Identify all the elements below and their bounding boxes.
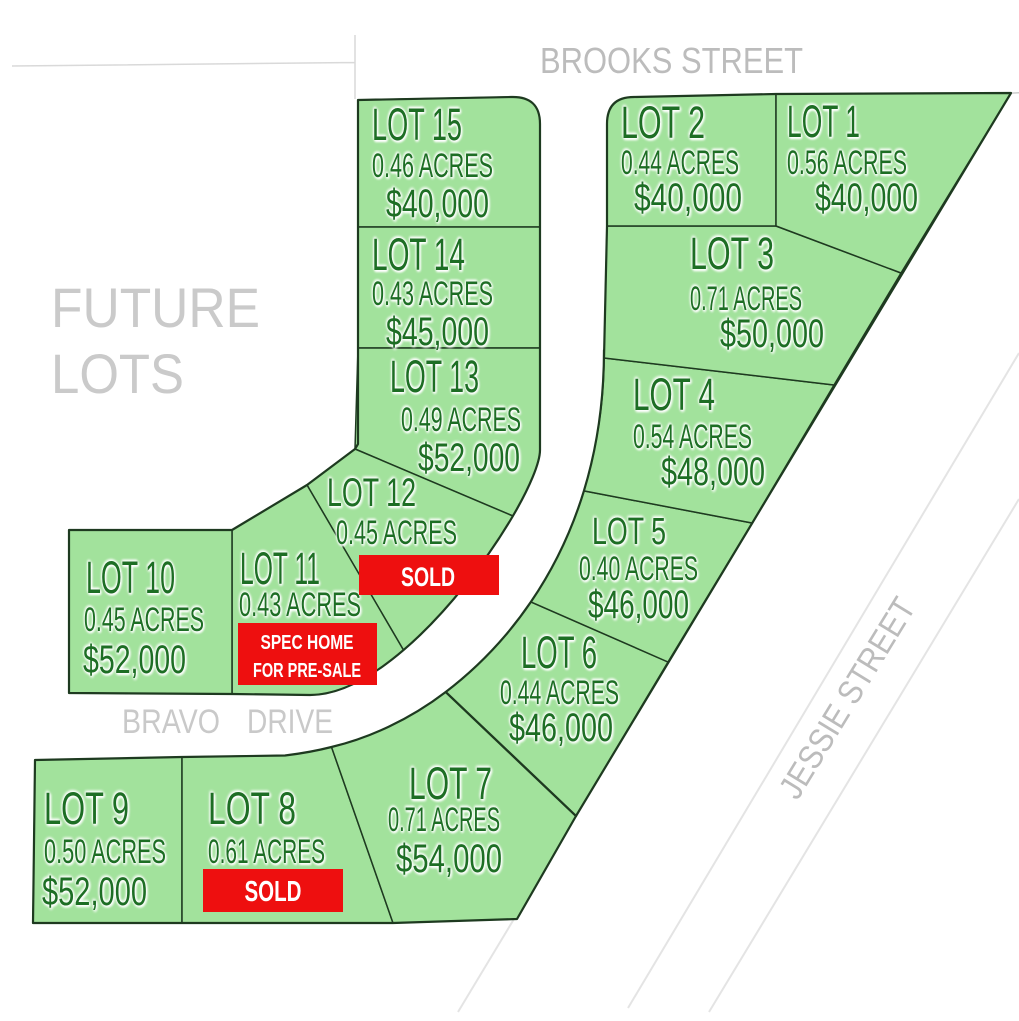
- svg-text:$50,000: $50,000: [720, 312, 824, 356]
- svg-text:BRAVO: BRAVO: [122, 703, 220, 741]
- svg-text:LOT 12: LOT 12: [327, 471, 416, 515]
- svg-text:FUTURE: FUTURE: [51, 276, 260, 339]
- svg-text:$48,000: $48,000: [661, 450, 765, 494]
- svg-text:LOT 9: LOT 9: [44, 783, 129, 834]
- svg-text:JESSIE STREET: JESSIE STREET: [772, 591, 924, 805]
- svg-text:LOT 4: LOT 4: [633, 369, 715, 420]
- svg-text:0.45 ACRES: 0.45 ACRES: [84, 601, 204, 639]
- svg-text:LOT 2: LOT 2: [621, 97, 705, 148]
- svg-text:SOLD: SOLD: [245, 876, 302, 908]
- svg-text:0.50 ACRES: 0.50 ACRES: [44, 833, 166, 871]
- svg-text:LOT 1: LOT 1: [787, 96, 860, 147]
- svg-text:0.61 ACRES: 0.61 ACRES: [208, 833, 325, 871]
- svg-text:$46,000: $46,000: [509, 706, 613, 750]
- svg-text:LOT 10: LOT 10: [86, 552, 175, 603]
- svg-text:$40,000: $40,000: [634, 176, 742, 220]
- svg-text:$52,000: $52,000: [83, 638, 186, 682]
- svg-text:LOT 3: LOT 3: [690, 228, 774, 279]
- svg-text:LOT 8: LOT 8: [208, 783, 296, 834]
- svg-text:LOTS: LOTS: [51, 342, 184, 405]
- svg-text:$46,000: $46,000: [588, 583, 689, 627]
- svg-text:$40,000: $40,000: [815, 176, 918, 220]
- svg-text:0.43 ACRES: 0.43 ACRES: [372, 275, 493, 313]
- svg-text:0.71 ACRES: 0.71 ACRES: [388, 801, 500, 839]
- svg-text:$52,000: $52,000: [418, 436, 520, 480]
- svg-text:0.49 ACRES: 0.49 ACRES: [401, 401, 521, 439]
- svg-text:$54,000: $54,000: [396, 837, 502, 881]
- svg-text:LOT 13: LOT 13: [390, 351, 479, 402]
- svg-text:0.46 ACRES: 0.46 ACRES: [372, 147, 493, 185]
- svg-text:0.43 ACRES: 0.43 ACRES: [239, 586, 361, 624]
- svg-text:FOR PRE-SALE: FOR PRE-SALE: [253, 660, 361, 682]
- svg-text:$45,000: $45,000: [386, 310, 489, 354]
- svg-text:0.45 ACRES: 0.45 ACRES: [336, 514, 457, 552]
- svg-text:BROOKS STREET: BROOKS STREET: [540, 40, 803, 81]
- svg-text:LOT 14: LOT 14: [372, 229, 465, 280]
- svg-text:DRIVE: DRIVE: [247, 703, 333, 741]
- svg-text:LOT 5: LOT 5: [592, 511, 666, 553]
- svg-text:$40,000: $40,000: [386, 182, 489, 226]
- svg-text:SOLD: SOLD: [401, 562, 455, 592]
- svg-text:SPEC HOME: SPEC HOME: [261, 632, 354, 654]
- svg-text:$52,000: $52,000: [42, 870, 147, 914]
- svg-text:LOT 6: LOT 6: [521, 627, 597, 678]
- svg-text:LOT 15: LOT 15: [372, 99, 462, 150]
